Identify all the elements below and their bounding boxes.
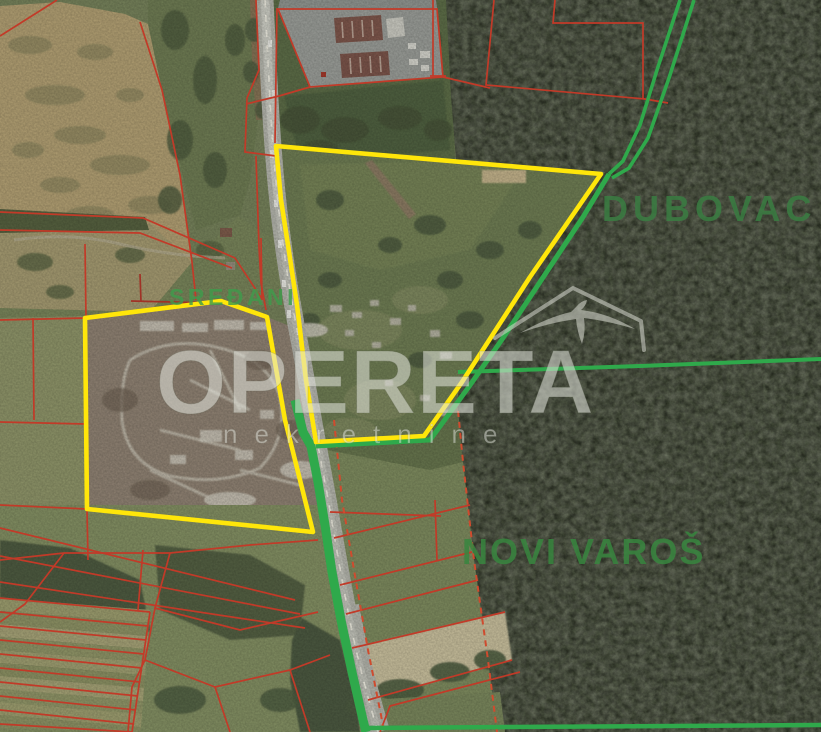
svg-text:OPERETA: OPERETA: [156, 333, 595, 433]
svg-text:nekretnine: nekretnine: [223, 419, 514, 449]
svg-text:NOVI VAROŠ: NOVI VAROŠ: [462, 530, 705, 572]
svg-text:SREĐANI: SREĐANI: [169, 284, 297, 310]
svg-text:DUBOVAC: DUBOVAC: [602, 188, 816, 229]
